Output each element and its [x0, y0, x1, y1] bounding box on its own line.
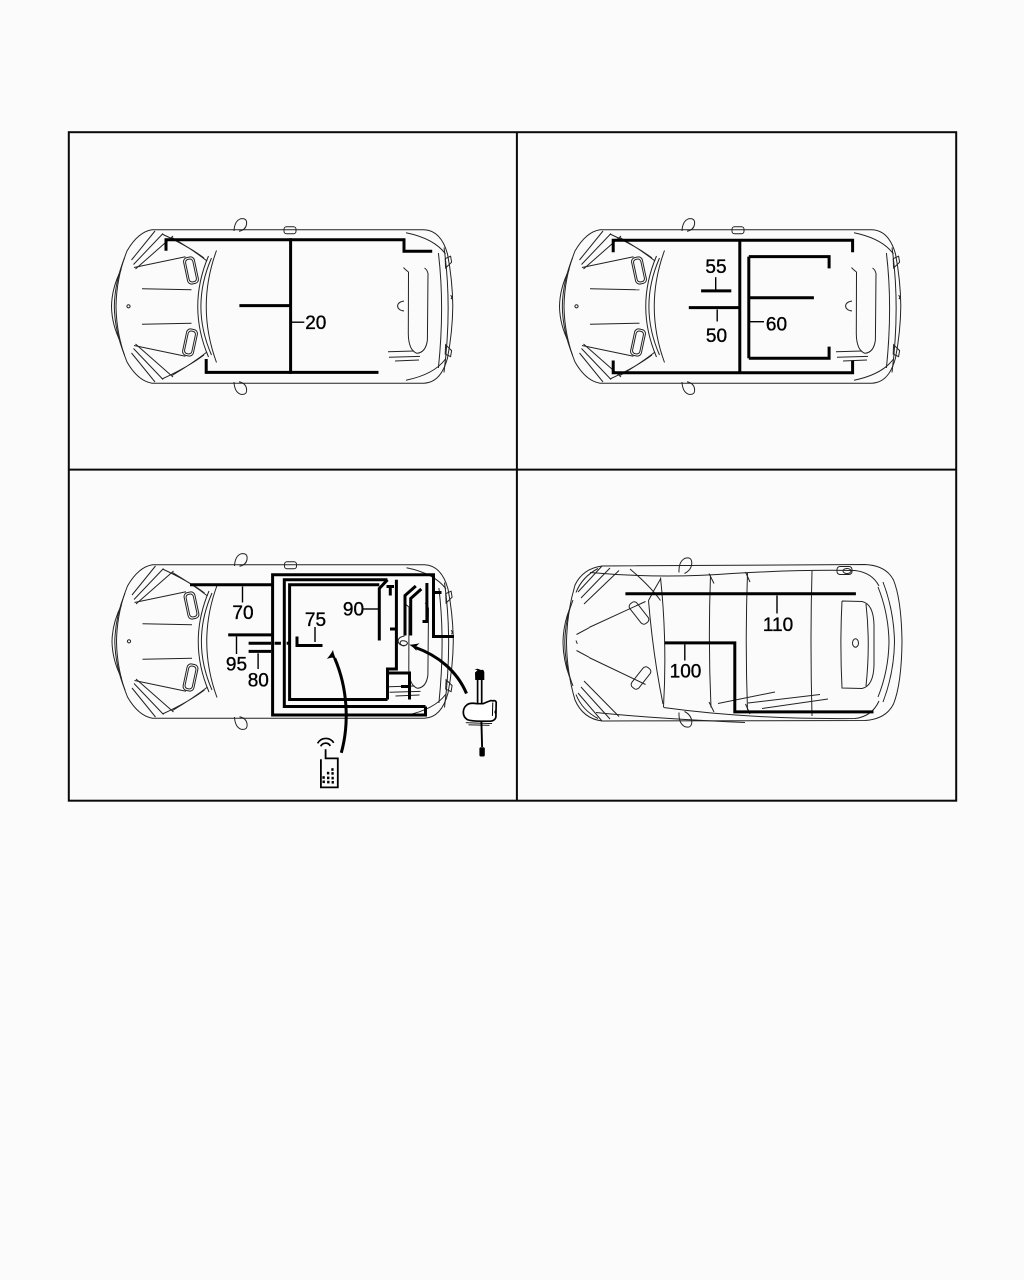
- svg-text:90: 90: [343, 600, 364, 621]
- svg-text:60: 60: [766, 315, 787, 336]
- svg-text:70: 70: [232, 603, 253, 624]
- svg-text:95: 95: [226, 655, 247, 676]
- svg-text:20: 20: [305, 313, 326, 334]
- svg-text:100: 100: [670, 662, 702, 683]
- svg-text:50: 50: [706, 326, 727, 347]
- svg-text:110: 110: [763, 615, 793, 636]
- svg-text:55: 55: [705, 257, 726, 278]
- svg-text:80: 80: [248, 671, 269, 692]
